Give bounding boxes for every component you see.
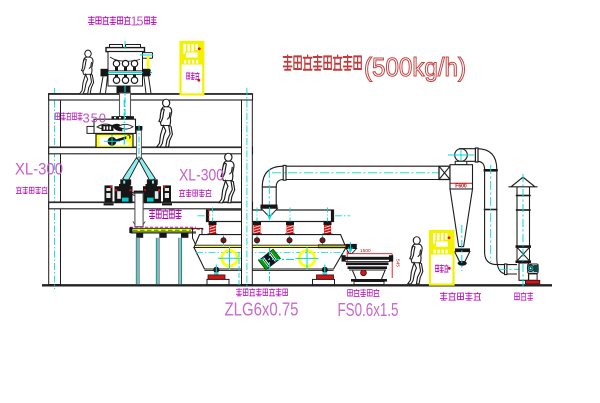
svg-text:XL-300: XL-300 (179, 167, 224, 185)
svg-text:XL-300: XL-300 (15, 161, 63, 179)
svg-text:350: 350 (83, 111, 107, 126)
svg-text:545: 545 (395, 259, 401, 267)
svg-text:ZLG6x0.75: ZLG6x0.75 (225, 300, 299, 320)
svg-text:(500kg/h): (500kg/h) (364, 52, 466, 82)
svg-text:1500: 1500 (360, 248, 371, 254)
svg-text:1.5: 1.5 (131, 15, 144, 29)
svg-text:FS0.6x1.5: FS0.6x1.5 (338, 300, 399, 320)
